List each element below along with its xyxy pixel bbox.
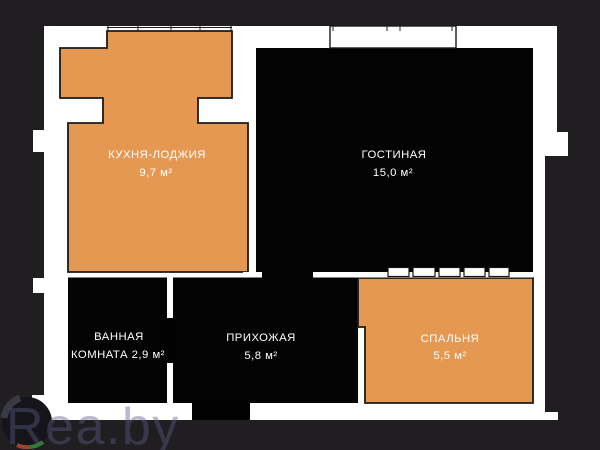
floor-plan-page: КУХНЯ-ЛОДЖИЯ 9,7 м² ГОСТИНАЯ 15,0 м² ВАН… (0, 0, 600, 450)
room-hallway-label: ПРИХОЖАЯ (226, 332, 296, 344)
room-kitchen-loggia-area: 9,7 м² (139, 167, 172, 179)
room-living-shape (256, 48, 533, 278)
room-bathroom-label-line2: КОМНАТА 2,9 м² (71, 349, 165, 361)
room-hallway-area: 5,8 м² (244, 350, 277, 362)
room-living-label: ГОСТИНАЯ (362, 149, 427, 161)
bathroom-door-opening (165, 318, 175, 363)
balcony-door (330, 26, 456, 49)
bedroom-partition-windows (388, 268, 509, 277)
watermark: Rea.by (2, 397, 180, 450)
entrance-opening (192, 403, 250, 420)
room-kitchen-loggia-label: КУХНЯ-ЛОДЖИЯ (108, 149, 206, 161)
room-bedroom-label: СПАЛЬНЯ (421, 333, 480, 345)
room-bedroom-area: 5,5 м² (433, 350, 466, 362)
room-bathroom-label-line1: ВАННАЯ (94, 331, 144, 343)
watermark-text: Rea.by (6, 398, 180, 450)
wall-living-hallway-stub (243, 272, 262, 278)
floor-plan: КУХНЯ-ЛОДЖИЯ 9,7 м² ГОСТИНАЯ 15,0 м² ВАН… (0, 0, 600, 450)
room-living-area: 15,0 м² (373, 167, 413, 179)
